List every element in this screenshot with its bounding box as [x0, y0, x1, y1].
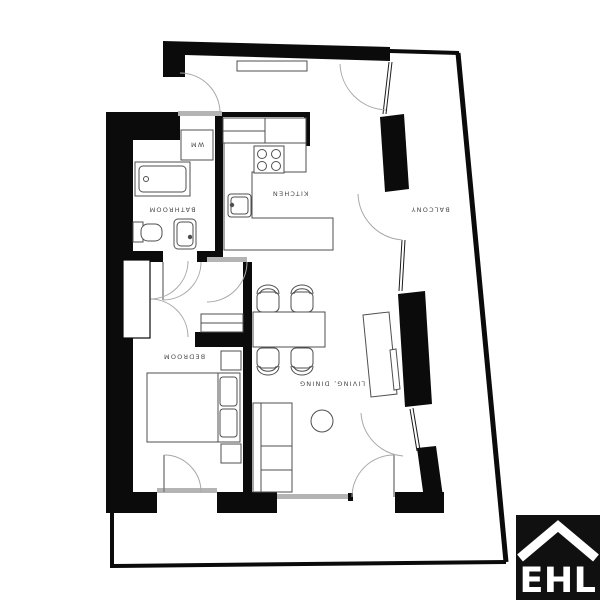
bottom-wall-2 [217, 492, 277, 513]
wardrobe [123, 260, 150, 338]
window-bottom [277, 494, 348, 499]
bedroom-top-wall [195, 332, 243, 347]
room-label-balcony: BALCONY [410, 206, 449, 214]
room-label-wm: WM [190, 141, 204, 149]
double-bed [147, 373, 240, 442]
floor-plan: BATHROOM WM KITCHEN BEDROOM LIVING, DINI… [0, 0, 600, 600]
sofa [253, 403, 292, 492]
upper-cabinets [223, 118, 306, 143]
room-label-bedroom: BEDROOM [163, 353, 205, 361]
logo-text: EHL [519, 561, 596, 600]
floor-plan-page: BATHROOM WM KITCHEN BEDROOM LIVING, DINI… [0, 0, 600, 600]
entry-threshold [178, 111, 222, 116]
ehl-logo: EHL [516, 515, 600, 600]
bathroom-top-wall [133, 112, 180, 140]
kitchen-left-wall [215, 112, 223, 253]
hall-threshold [207, 257, 247, 262]
room-label-bathroom: BATHROOM [148, 206, 195, 214]
pillow [220, 409, 237, 437]
bathtub [135, 162, 190, 196]
toilet [133, 222, 162, 242]
window-pier-1 [380, 114, 409, 192]
nightstand [221, 444, 241, 463]
bedroom-living-wall [243, 262, 252, 492]
bedroom-terrace-threshold [157, 488, 217, 493]
nightstand [221, 351, 241, 370]
pillow [220, 377, 237, 406]
room-label-living-dining: LIVING, DINING [299, 380, 365, 388]
bottom-wall-1 [106, 492, 157, 513]
kitchen-sink [228, 194, 251, 217]
entry-sideboard [237, 61, 307, 71]
hob [254, 146, 284, 173]
kitchen-top-wall [220, 112, 310, 117]
room-label-kitchen: KITCHEN [272, 190, 309, 198]
bench [201, 314, 243, 332]
coffee-table [311, 410, 333, 432]
washbasin [174, 219, 196, 249]
dining-table [253, 312, 325, 347]
